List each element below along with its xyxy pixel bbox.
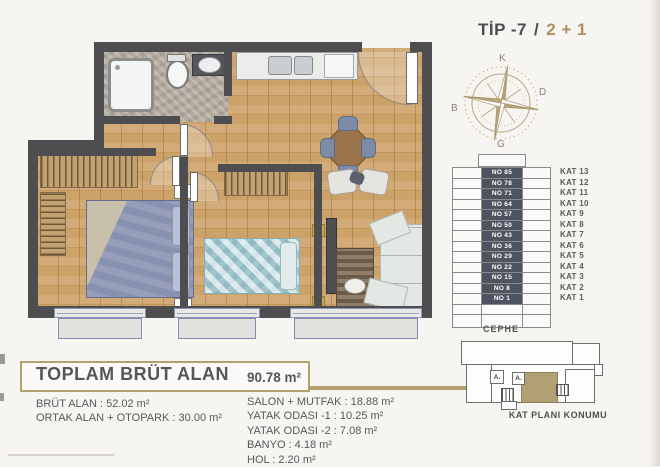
area-line: YATAK ODASI -1 : 10.25 m² — [247, 409, 394, 423]
core-box-a1-label: A. — [494, 374, 501, 381]
kat-label-column: KAT 13 KAT 12 KAT 11 KAT 10 KAT 9 KAT 8 … — [560, 167, 610, 304]
total-area-title: TOPLAM BRÜT ALAN — [36, 364, 229, 385]
window3-frame — [290, 308, 422, 318]
area-line: ORTAK ALAN + OTOPARK : 30.00 m² — [36, 411, 222, 425]
wall-bathroom-right — [224, 52, 232, 96]
scan-shadow-right — [648, 0, 660, 466]
unit-no-cell: NO 85 — [482, 168, 523, 179]
kat-label: KAT 5 — [560, 251, 610, 262]
unit-no-cell: NO 1 — [482, 294, 523, 305]
wall-bedroom1-top — [38, 148, 156, 156]
highlighted-unit — [521, 372, 558, 403]
building-floor-row: NO 71 — [453, 189, 550, 200]
kat-label: KAT 11 — [560, 188, 610, 199]
kat-label: KAT 7 — [560, 230, 610, 241]
wardrobe-bedroom1 — [40, 154, 138, 188]
kat-label: KAT 9 — [560, 209, 610, 220]
area-line: SALON + MUTFAK : 18.88 m² — [247, 395, 394, 409]
bedroom2-door-leaf — [190, 172, 198, 202]
scan-line-bottom — [8, 454, 114, 456]
building-floor-row: NO 1 — [453, 294, 550, 305]
shower-drain-icon — [115, 65, 120, 70]
bathroom-door-leaf — [180, 124, 188, 156]
facade-label: CEPHE — [452, 324, 550, 334]
wall-bedroom2-top — [218, 164, 322, 172]
unit-no-cell: NO 15 — [482, 273, 523, 284]
window1-sill — [58, 318, 142, 339]
area-list-right: SALON + MUTFAK : 18.88 m² YATAK ODASI -1… — [247, 395, 394, 467]
dining-chair-right — [361, 138, 376, 158]
kat-label: KAT 4 — [560, 262, 610, 273]
building-outline-top — [461, 341, 573, 365]
unit-no-cell: NO 64 — [482, 200, 523, 211]
core-box-a1: A. — [490, 370, 504, 384]
building-floor-row: NO 85 — [453, 168, 550, 179]
core-box-a2: A. — [512, 372, 525, 385]
entrance-door-leaf — [406, 52, 418, 104]
leader-line — [310, 386, 470, 390]
stairs-icon-right — [556, 384, 569, 396]
floor-plan — [28, 20, 440, 350]
kitchen-appliance — [324, 54, 354, 78]
building-floor-row: NO 8 — [453, 284, 550, 295]
area-line: BANYO : 4.18 m² — [247, 438, 394, 452]
wall-bathroom-bottom-a — [104, 116, 180, 124]
compass-west-label: B — [451, 103, 458, 114]
unit-no-cell: NO 36 — [482, 242, 523, 253]
closet-bedroom1 — [40, 192, 66, 256]
window3-sill — [294, 318, 418, 339]
total-area-box: TOPLAM BRÜT ALAN 90.78 m² — [20, 361, 310, 392]
window2-sill — [178, 318, 256, 339]
unit-no-cell: NO 22 — [482, 263, 523, 274]
scan-mark-2 — [0, 393, 4, 401]
building-roof-cap — [478, 154, 526, 167]
wall-divider-bedrooms — [180, 148, 188, 306]
kat-label: KAT 6 — [560, 241, 610, 252]
kat-label: KAT 12 — [560, 178, 610, 189]
title-unit: 2 + 1 — [546, 20, 587, 40]
building-outline-top-right — [572, 343, 600, 365]
area-list-left: BRÜT ALAN : 52.02 m² ORTAK ALAN + OTOPAR… — [36, 397, 222, 426]
total-area-value: 90.78 m² — [247, 370, 301, 385]
compass-icon — [455, 55, 547, 147]
kat-label: KAT 3 — [560, 272, 610, 283]
building-floor-row: NO 15 — [453, 273, 550, 284]
building-stack-diagram: NO 85 NO 78 NO 71 NO 64 NO 57 NO 50 NO 4… — [452, 167, 551, 328]
compass-rose: K D B G — [455, 55, 547, 147]
wall-right — [422, 42, 432, 316]
compass-east-label: D — [539, 87, 546, 98]
plan-title: TİP -7 / 2 + 1 — [478, 20, 587, 40]
building-floor-row: NO 22 — [453, 263, 550, 274]
core-box-a2-label: A. — [515, 375, 522, 382]
title-type: TİP -7 — [478, 20, 527, 40]
building-ground-row — [453, 305, 550, 316]
bathroom-sink — [198, 57, 221, 73]
wall-divider-salon — [314, 172, 322, 306]
building-floor-row: NO 57 — [453, 210, 550, 221]
building-outline-right-room — [565, 369, 595, 403]
area-line: HOL : 2.20 m² — [247, 453, 394, 467]
building-floor-row: NO 29 — [453, 252, 550, 263]
building-floor-row: NO 78 — [453, 179, 550, 190]
wall-left-lower — [28, 140, 38, 318]
dining-chair-left — [320, 138, 335, 158]
bedroom1-door-leaf — [172, 156, 180, 186]
kat-label: KAT 10 — [560, 199, 610, 210]
unit-no-cell: NO 71 — [482, 189, 523, 200]
wall-left-upper — [94, 42, 104, 150]
toilet — [166, 60, 189, 89]
unit-no-cell: NO 43 — [482, 231, 523, 242]
kat-label: KAT 1 — [560, 293, 610, 304]
wall-top — [94, 42, 362, 52]
wall-bathroom-bottom-b — [214, 116, 232, 124]
single-bed-pillow — [280, 242, 297, 290]
kitchen-sink-bowl-left — [268, 56, 292, 75]
building-floor-row: NO 43 — [453, 231, 550, 242]
scan-mark-1 — [0, 354, 5, 364]
unit-no-cell: NO 57 — [482, 210, 523, 221]
compass-north-label: K — [499, 53, 506, 64]
location-diagram: A. A. KAT PLANI KONUMU — [458, 340, 658, 426]
building-floor-row: NO 36 — [453, 242, 550, 253]
unit-no-cell: NO 50 — [482, 221, 523, 232]
window2-frame — [174, 308, 260, 318]
window1-frame — [54, 308, 146, 318]
wardrobe-bedroom2 — [224, 170, 288, 196]
toilet-tank — [167, 54, 186, 62]
kitchen-sink-bowl-right — [294, 56, 313, 75]
area-line: YATAK ODASI -2 : 7.08 m² — [247, 424, 394, 438]
building-outline-bottom-stub — [501, 401, 517, 410]
exterior-mask — [28, 20, 96, 142]
title-separator: / — [534, 20, 539, 40]
kat-label: KAT 13 — [560, 167, 610, 178]
area-line: BRÜT ALAN : 52.02 m² — [36, 397, 222, 411]
dining-chair-top — [338, 116, 358, 131]
unit-no-cell: NO 8 — [482, 284, 523, 295]
kat-label: KAT 8 — [560, 220, 610, 231]
building-outline-left-room — [466, 364, 492, 403]
compass-south-label: G — [497, 139, 505, 150]
location-label: KAT PLANI KONUMU — [468, 410, 648, 420]
building-floor-row: NO 50 — [453, 221, 550, 232]
kat-label: KAT 2 — [560, 283, 610, 294]
unit-no-cell: NO 78 — [482, 179, 523, 190]
unit-no-cell: NO 29 — [482, 252, 523, 263]
building-floor-row: NO 64 — [453, 200, 550, 211]
coffee-table — [344, 278, 366, 294]
